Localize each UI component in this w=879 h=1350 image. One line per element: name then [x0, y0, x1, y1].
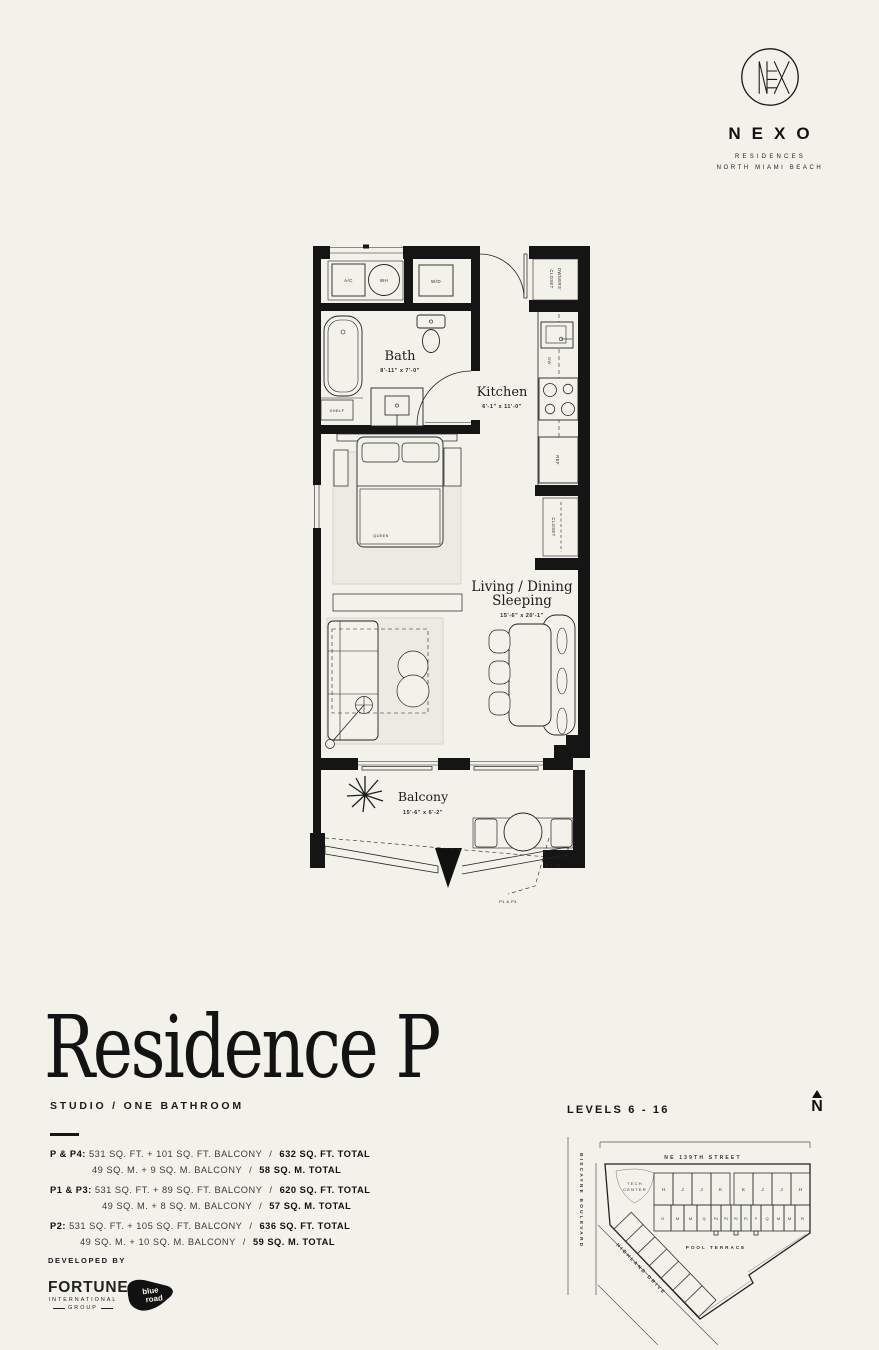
unit-label: O: [661, 1216, 664, 1221]
separator: /: [269, 1185, 272, 1195]
dw-label: DW: [547, 357, 552, 364]
brand-name: NEXO: [694, 124, 844, 144]
kitchen-dims: 6'-1" x 11'-0": [482, 404, 522, 410]
callout-p-p4: P & P4: [546, 863, 561, 868]
balcony-table-icon: [504, 813, 542, 851]
unit-label-highlighted: P: [755, 1217, 757, 1221]
utility-closet: A/C WH W/D: [328, 261, 453, 300]
area-item-p2: P2: 531 SQ. FT. + 105 SQ. FT. BALCONY / …: [50, 1219, 370, 1250]
fortune-rule-right: [101, 1308, 113, 1309]
coffee-table-icon-2: [397, 675, 429, 707]
area-m: 49 SQ. M. + 8 SQ. M. BALCONY: [102, 1201, 252, 1211]
bathtub-icon: [324, 316, 362, 396]
unit-label: J: [681, 1187, 683, 1192]
area-ft-total: 632 SQ. FT. TOTAL: [279, 1149, 370, 1159]
balcony-chair: [475, 819, 497, 847]
fortune-rule-left: [53, 1308, 65, 1309]
dining-chair: [489, 661, 510, 684]
bathroom: SHELF Bath 8'-11" x 7'-0": [321, 315, 471, 426]
area-ft: 531 SQ. FT. + 89 SQ. FT. BALCONY: [95, 1185, 262, 1195]
sleeping-area: QUEEN: [333, 434, 462, 611]
page-subtitle: STUDIO / ONE BATHROOM: [50, 1100, 244, 1112]
dining-chair: [489, 630, 510, 653]
area-m-total: 58 SQ. M. TOTAL: [259, 1165, 341, 1175]
separator: /: [249, 1165, 252, 1175]
wh-label: WH: [380, 278, 388, 283]
street-label-left: BISCAYNE BOULEVARD: [578, 1153, 584, 1248]
area-item-p1-p3: P1 & P3: 531 SQ. FT. + 89 SQ. FT. BALCON…: [50, 1183, 370, 1214]
tech-center-label-1: TECH: [627, 1181, 643, 1186]
balcony-dims: 15'-6" x 6'-2": [403, 810, 443, 816]
owners-closet-label-2: CLOSET: [549, 269, 554, 288]
unit-row-2: O M M Q P4 P3 P2 P1 P Q M M R: [654, 1205, 810, 1235]
unit-label: Q: [765, 1216, 768, 1221]
floor-plan: OWNERS' CLOSET A/C WH W/D SHELF: [303, 238, 593, 913]
area-m-total: 57 SQ. M. TOTAL: [269, 1201, 351, 1211]
balcony-railing: [325, 846, 438, 873]
brand-location: NORTH MIAMI BEACH: [694, 165, 844, 171]
unit-label: K: [742, 1187, 746, 1192]
unit-label: J: [761, 1187, 763, 1192]
living-dims: 15'-6" x 20'-1": [500, 613, 543, 619]
fortune-international: INTERNATIONAL: [48, 1297, 118, 1303]
dining-table-icon: [509, 624, 551, 726]
hall-closet: CLOSET: [543, 498, 578, 556]
unit-label: H: [799, 1187, 802, 1192]
page-title: Residence P: [44, 1004, 439, 1092]
pool-terrace-label: POOL TERRACE: [686, 1245, 746, 1250]
street-label-top: NE 139TH STREET: [664, 1155, 741, 1161]
blue-road-logo: blue road: [122, 1276, 178, 1316]
unit-label: M: [788, 1216, 791, 1221]
area-details: P & P4: 531 SQ. FT. + 101 SQ. FT. BALCON…: [50, 1147, 370, 1255]
unit-label: H: [662, 1187, 665, 1192]
monogram-letters: [759, 61, 789, 93]
kitchen: DW REF Kitchen 6'-1" x 11'-0": [477, 311, 578, 485]
unit-label-highlighted: P3: [724, 1217, 728, 1221]
unit-label: K: [719, 1187, 723, 1192]
ref-label: REF: [555, 455, 560, 465]
unit-label: Q: [702, 1216, 705, 1221]
living-room-label-2: Sleeping: [492, 593, 552, 609]
bath-dims: 8'-11" x 7'-0": [380, 368, 420, 374]
brochure-page: NEXO RESIDENCES NORTH MIAMI BEACH: [0, 0, 879, 1350]
fortune-logo: FORTUNE INTERNATIONAL GROUP: [48, 1280, 118, 1311]
sofa-icon: [328, 621, 378, 740]
area-m-total: 59 SQ. M. TOTAL: [253, 1237, 335, 1247]
tech-center-label-2: CENTER: [623, 1187, 647, 1192]
north-arrow: N: [803, 1090, 831, 1116]
closet-label: CLOSET: [551, 517, 556, 536]
plant-icon: [347, 776, 383, 812]
unit-label: J: [700, 1187, 702, 1192]
entry-door: [480, 254, 527, 298]
unit-label: J: [780, 1187, 782, 1192]
toilet-icon: [417, 315, 445, 328]
sliding-door: [474, 767, 538, 771]
owners-closet: OWNERS' CLOSET: [533, 259, 578, 300]
sliding-door: [362, 767, 432, 771]
wd-label: W/D: [431, 279, 441, 284]
area-label: P & P4:: [50, 1149, 86, 1159]
nightstand-left: [334, 450, 348, 486]
callout-p1-p3: P1 & P3: [499, 899, 517, 904]
unit-label: M: [676, 1216, 679, 1221]
dining-chair: [489, 692, 510, 715]
area-label: P2:: [50, 1221, 66, 1231]
area-ft: 531 SQ. FT. + 101 SQ. FT. BALCONY: [89, 1149, 262, 1159]
area-m: 49 SQ. M. + 9 SQ. M. BALCONY: [92, 1165, 242, 1175]
queen-label: QUEEN: [373, 534, 389, 538]
unit-label-highlighted: P1: [744, 1217, 748, 1221]
separator: /: [269, 1149, 272, 1159]
brand-residences: RESIDENCES: [694, 154, 844, 160]
owners-closet-label-1: OWNERS': [557, 268, 562, 290]
diagonal-unit-strip: [614, 1212, 716, 1316]
separator: /: [243, 1237, 246, 1247]
lounge-area: [326, 618, 444, 749]
shelf-label: SHELF: [330, 408, 345, 413]
street-line-top: [600, 1142, 810, 1148]
fortune-group: GROUP: [68, 1305, 98, 1311]
nexo-monogram-logo: [740, 47, 800, 107]
unit-label: M: [777, 1216, 780, 1221]
area-m: 49 SQ. M. + 10 SQ. M. BALCONY: [80, 1237, 236, 1247]
unit-label: M: [689, 1216, 692, 1221]
area-ft-total: 620 SQ. FT. TOTAL: [280, 1185, 371, 1195]
unit-label: R: [801, 1216, 804, 1221]
north-letter: N: [803, 1098, 831, 1116]
levels-label: LEVELS 6 - 16: [567, 1104, 670, 1116]
bath-room-label: Bath: [385, 349, 417, 364]
area-label: P1 & P3:: [50, 1185, 92, 1195]
fortune-name: FORTUNE: [48, 1280, 118, 1296]
unit-label-highlighted: P2: [734, 1217, 738, 1221]
unit-row-1: H J J K K J J H: [654, 1173, 810, 1205]
ac-label: A/C: [344, 278, 353, 283]
north-arrow-icon: [812, 1090, 822, 1098]
unit-label-highlighted: P4: [714, 1217, 718, 1221]
site-plan: NE 139TH STREET BISCAYNE BOULEVARD HIGHL…: [556, 1133, 871, 1348]
title-divider: [50, 1133, 79, 1136]
bench: [333, 594, 462, 611]
dining-area: [489, 615, 575, 735]
nightstand-right: [444, 448, 461, 486]
kitchen-room-label: Kitchen: [477, 385, 528, 400]
balcony: Balcony 15'-6" x 6'-2" P & P4 P1 & P3: [325, 762, 573, 905]
separator: /: [249, 1221, 252, 1231]
balcony-chair: [551, 819, 572, 847]
developed-by-heading: DEVELOPED BY: [48, 1256, 126, 1265]
area-ft: 531 SQ. FT. + 105 SQ. FT. BALCONY: [69, 1221, 242, 1231]
area-ft-total: 636 SQ. FT. TOTAL: [260, 1221, 351, 1231]
view-direction-pointer: [435, 848, 462, 888]
area-item-p-p4: P & P4: 531 SQ. FT. + 101 SQ. FT. BALCON…: [50, 1147, 370, 1178]
separator: /: [259, 1201, 262, 1211]
balcony-room-label: Balcony: [398, 789, 449, 804]
